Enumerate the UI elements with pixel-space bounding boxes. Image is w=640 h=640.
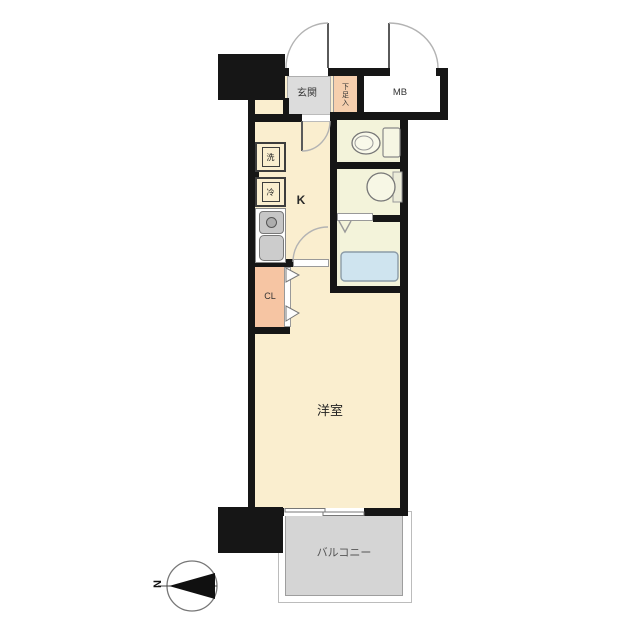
entrance-hall-wall bbox=[250, 114, 302, 122]
entrance-label: 玄関 bbox=[285, 88, 329, 100]
meter-box-door-arc bbox=[389, 23, 438, 68]
kitchen-counter bbox=[255, 208, 286, 263]
toilet-basin-wall bbox=[330, 162, 408, 169]
basin-bath-wall bbox=[373, 215, 408, 222]
entrance-hall-doorway bbox=[302, 114, 330, 122]
pillar-top-left bbox=[218, 54, 285, 100]
room-door-strip bbox=[293, 259, 329, 267]
closet-door-strip bbox=[284, 267, 291, 327]
left-wall bbox=[248, 96, 255, 515]
kitchen-sink bbox=[259, 235, 284, 261]
fridge-box-inner: 冷 bbox=[262, 182, 280, 202]
balcony-label: バルコニー bbox=[299, 547, 389, 560]
shoe-meter-wall bbox=[357, 72, 364, 112]
washer-box-inner: 洗 bbox=[262, 147, 280, 167]
wall-below-meter-box bbox=[330, 112, 448, 120]
pillar-bottom-left bbox=[218, 507, 283, 553]
right-wall-main bbox=[400, 118, 408, 515]
bath-door-strip bbox=[337, 213, 373, 221]
western-room-label: 洋室 bbox=[300, 403, 360, 418]
closet-bottom-wall bbox=[250, 327, 290, 334]
compass-needle bbox=[169, 573, 215, 599]
floorplan-canvas: 洗 冷 bbox=[0, 0, 640, 640]
kitchen-label: K bbox=[289, 193, 313, 207]
stove-burner bbox=[266, 217, 277, 228]
entrance-door-arc bbox=[286, 23, 328, 68]
bath-bottom-wall bbox=[330, 286, 408, 293]
compass-north-label: N bbox=[151, 576, 165, 592]
wet-area-left-wall bbox=[330, 112, 337, 293]
bottom-wall-right bbox=[364, 508, 408, 516]
closet-label: CL bbox=[257, 291, 283, 302]
compass-circle bbox=[167, 561, 217, 611]
meter-box-label: MB bbox=[370, 87, 430, 99]
stove bbox=[259, 211, 284, 234]
shoe-box-label: 下足入 bbox=[336, 78, 354, 112]
washer-box: 洗 bbox=[255, 142, 286, 172]
top-wall-left-end bbox=[283, 68, 289, 76]
fridge-box: 冷 bbox=[255, 177, 286, 207]
wet-area-floor bbox=[337, 119, 402, 287]
